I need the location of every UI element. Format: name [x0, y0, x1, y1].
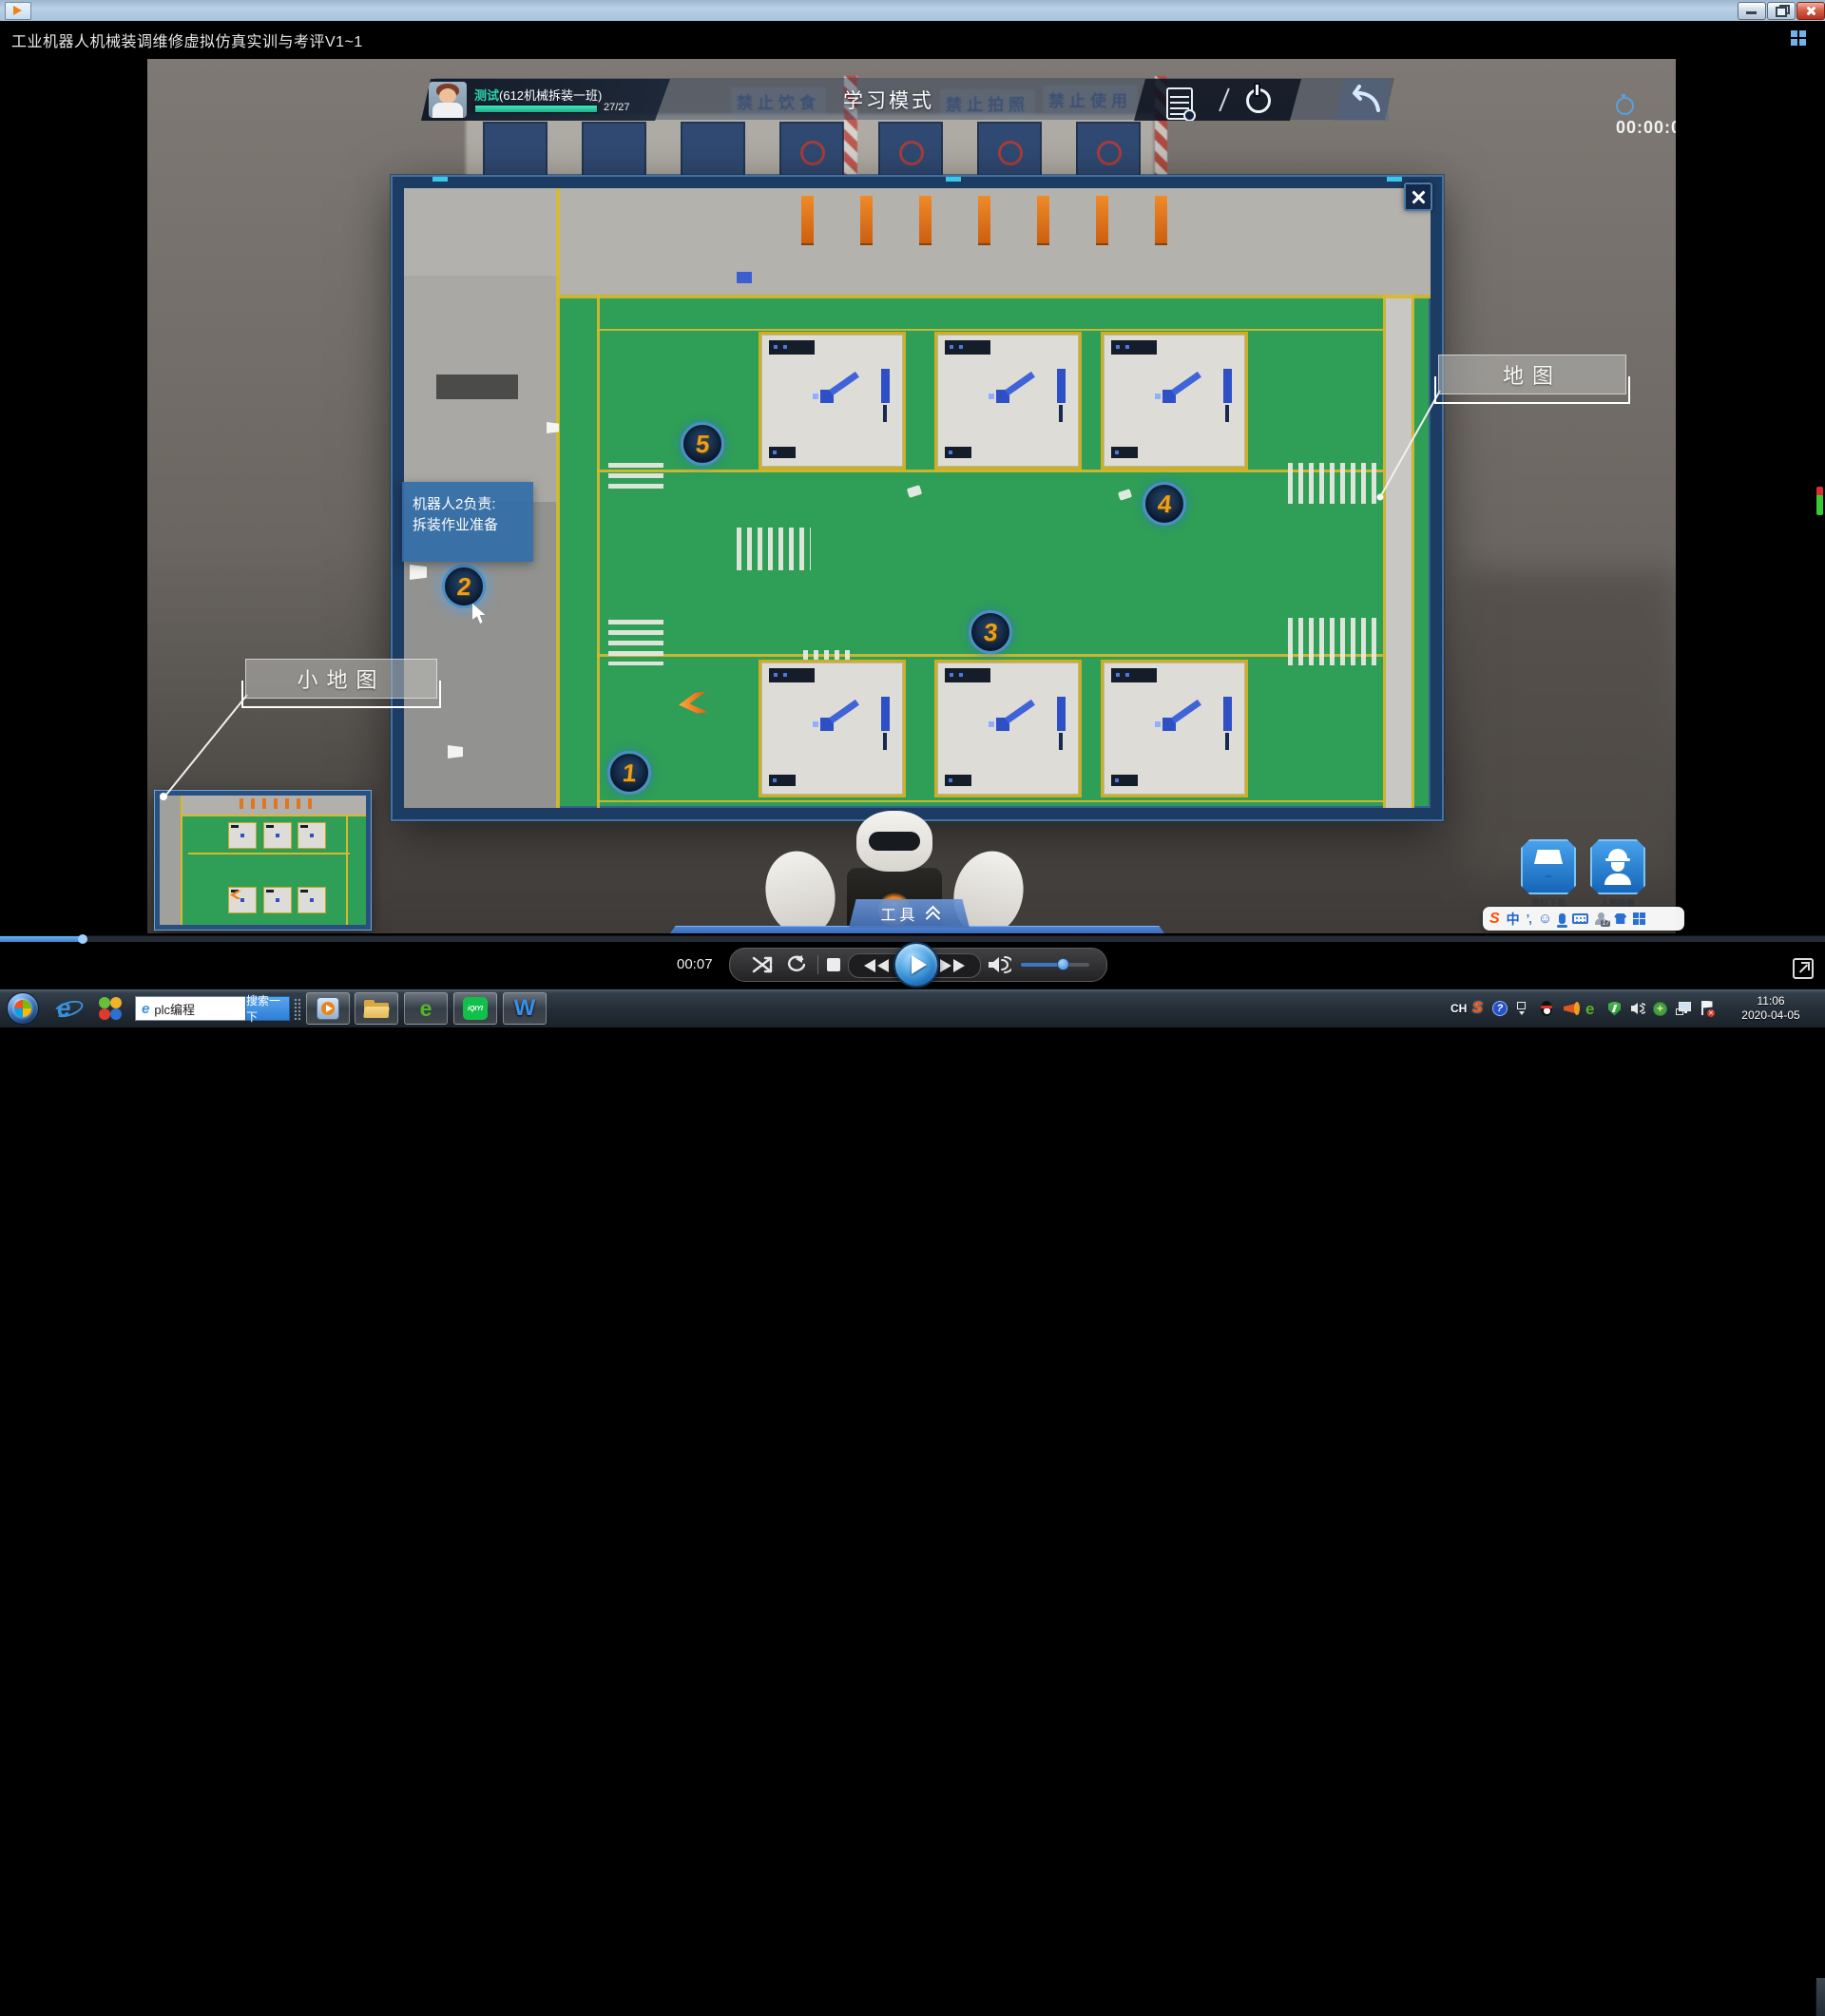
window-minimize-button[interactable] — [1738, 2, 1766, 20]
worker-helmet-icon — [1604, 849, 1631, 885]
map-marker-2[interactable]: 2 — [442, 565, 486, 608]
tray-security-shield-icon[interactable] — [1608, 989, 1621, 1027]
progress-bar — [474, 105, 598, 113]
workcell — [759, 332, 906, 470]
lane-line — [556, 188, 560, 808]
wps-icon: W — [514, 997, 536, 1020]
video-frame[interactable]: 禁止饮食 禁止拍照 禁止使用 测试(612机械拆装一班) 27/27 学习模式 … — [147, 59, 1676, 933]
door-icon — [448, 745, 463, 758]
green-e-icon: e — [420, 998, 432, 1020]
soft-keyboard-icon[interactable] — [1572, 913, 1588, 924]
ime-toolbar: S 中 ’, ☺ 17 — [1483, 907, 1684, 931]
taskbar-browser-button[interactable] — [99, 997, 122, 1020]
map-marker-5[interactable]: 5 — [681, 422, 724, 466]
chevron-up-icon — [927, 907, 938, 920]
fast-forward-icon[interactable] — [938, 958, 967, 973]
hud-user-plate: 测试(612机械拆装一班) 27/27 — [421, 79, 670, 121]
repeat-icon[interactable] — [785, 955, 808, 974]
map-panel: 5 2 4 3 1 — [393, 177, 1442, 819]
lane-line — [597, 800, 1383, 802]
workcell — [1101, 660, 1248, 797]
avatar[interactable] — [429, 82, 467, 118]
user-name: 测试(612机械拆装一班) — [474, 86, 602, 104]
crosswalk — [1288, 618, 1376, 665]
minimap-callout-label: 小地图 — [245, 659, 437, 699]
crosswalk — [608, 463, 663, 494]
lane-line — [597, 654, 1383, 657]
lane-line — [556, 295, 1431, 298]
play-button[interactable] — [893, 942, 939, 988]
scene-poster-frame — [1076, 122, 1141, 179]
tray-antivirus-icon[interactable]: + — [1653, 989, 1667, 1027]
map-callout-label: 地图 — [1438, 355, 1626, 394]
fullscreen-button[interactable] — [1793, 958, 1814, 979]
recorder-level-widget — [1816, 487, 1823, 515]
lane-line — [1412, 295, 1414, 808]
map-close-button[interactable] — [1404, 182, 1432, 211]
voice-input-icon[interactable] — [1559, 913, 1566, 924]
seek-knob[interactable] — [78, 934, 87, 944]
hud-icon-panel — [1134, 79, 1301, 121]
minimap[interactable] — [155, 791, 371, 930]
charging-bay — [860, 196, 873, 243]
drawer-icon — [1534, 850, 1563, 884]
search-go-button[interactable]: 搜索一下 — [245, 996, 290, 1021]
mode-label: 学习模式 — [843, 86, 934, 114]
robot-visor — [869, 832, 920, 851]
session-timer: 00:00:00 — [1616, 95, 1676, 138]
scene-poster-frame — [977, 122, 1042, 179]
crosswalk — [737, 528, 811, 570]
tools-tab[interactable]: 工具 — [849, 899, 970, 928]
iqiyi-icon: iQIYI — [463, 997, 488, 1020]
map-marker-4[interactable]: 4 — [1143, 482, 1186, 526]
app-icon — [5, 2, 31, 20]
window-close-button[interactable] — [1796, 2, 1825, 20]
ime-theme-icon[interactable] — [1614, 913, 1626, 924]
map-marker-3[interactable]: 3 — [969, 610, 1012, 654]
rewind-icon[interactable] — [862, 958, 891, 973]
player-stage: 工业机器人机械装调维修虚拟仿真实训与考评V1~1 禁止饮食 禁止拍照 禁止使用 … — [0, 21, 1825, 989]
play-glyph-icon — [13, 6, 22, 15]
tray-browser-icon[interactable]: e — [1585, 989, 1594, 1027]
scene-poster-frame — [582, 122, 646, 179]
tray-network-icon[interactable] — [1676, 989, 1691, 1027]
floor-mark — [907, 485, 922, 498]
taskbar-iqiyi-button[interactable]: iQIYI — [453, 992, 497, 1025]
map-top-strip — [558, 188, 1431, 295]
back-arrow-icon — [1345, 85, 1383, 115]
scene-shadow — [1464, 572, 1673, 876]
media-title: 工业机器人机械装调维修虚拟仿真实训与考评V1~1 — [11, 29, 363, 51]
tray-announcement-icon[interactable] — [1564, 989, 1580, 1027]
frame-tick — [432, 177, 448, 182]
workcell — [934, 660, 1082, 797]
stopwatch-icon — [1616, 97, 1634, 115]
door-icon — [410, 565, 427, 580]
door-icon — [547, 422, 559, 433]
crosswalk — [1288, 463, 1376, 504]
workcell — [759, 660, 906, 797]
tray-action-center-icon[interactable]: ✕ — [1700, 989, 1715, 1027]
power-icon[interactable] — [1246, 88, 1271, 113]
start-button[interactable] — [7, 992, 39, 1025]
seek-bar[interactable] — [0, 935, 1825, 942]
materials-button[interactable] — [1521, 839, 1576, 894]
search-query: plc编程 — [154, 1000, 195, 1018]
tray-clock[interactable]: 11:062020-04-05 — [1730, 989, 1812, 1027]
playlist-grid-icon[interactable] — [1791, 30, 1806, 46]
toolbar-drag-handle[interactable] — [293, 997, 300, 1020]
robot-tooltip: 机器人2负责:拆装作业准备 — [402, 482, 533, 562]
divider — [1219, 88, 1230, 112]
taskbar: e e plc编程 搜索一下 e iQIYI W CH S ? e + ✕ 11… — [0, 989, 1825, 1027]
playback-time: 00:07 — [677, 956, 713, 972]
player-controls — [729, 948, 1107, 982]
ime-punctuation-toggle[interactable]: ’, — [1527, 912, 1531, 926]
media-player-icon — [317, 997, 339, 1020]
player-position-arrow — [678, 691, 708, 715]
map-machine — [737, 272, 752, 283]
sogou-logo-icon[interactable]: S — [1489, 911, 1500, 928]
lane-line — [1383, 295, 1386, 808]
volume-icon[interactable] — [987, 955, 1011, 974]
folder-icon — [364, 1000, 389, 1018]
taskbar-explorer-button[interactable] — [355, 992, 398, 1025]
tray-sogou-icon[interactable]: S — [1472, 989, 1483, 1027]
charging-bay — [801, 196, 814, 243]
search-engine-icon: e — [142, 1001, 149, 1017]
tray-volume-icon[interactable] — [1630, 989, 1645, 1027]
scene-poster-frame — [483, 122, 547, 179]
show-desktop-button[interactable] — [1815, 1978, 1825, 2016]
tray-language-indicator[interactable]: CH — [1450, 989, 1467, 1027]
scene-poster-frame — [779, 122, 844, 179]
map-right-walkway — [1386, 295, 1412, 808]
stop-button[interactable] — [827, 958, 840, 971]
workcell — [934, 332, 1082, 470]
taskbar-browser2-button[interactable]: e — [404, 992, 448, 1025]
tray-hidden-icons-button[interactable] — [1517, 989, 1526, 1027]
window-titlebar — [0, 0, 1825, 22]
equipment-button[interactable] — [1590, 839, 1645, 894]
shuffle-icon[interactable] — [751, 955, 776, 974]
lane-line — [597, 295, 600, 808]
tray-help-icon[interactable]: ? — [1492, 989, 1508, 1027]
minimap-corridor — [160, 796, 181, 925]
charging-bay — [919, 196, 932, 243]
window-restore-button[interactable] — [1767, 2, 1796, 20]
scene-poster-frame — [878, 122, 943, 179]
scene-poster-frame — [681, 122, 745, 179]
frame-tick — [1387, 177, 1402, 182]
lane-line — [597, 470, 1383, 472]
ime-skin-icon[interactable]: 17 — [1595, 912, 1607, 925]
ime-toolbox-icon[interactable] — [1633, 912, 1645, 925]
lane-line — [597, 329, 1383, 331]
tray-qq-icon[interactable] — [1540, 989, 1553, 1027]
crosswalk — [608, 620, 663, 665]
charging-bay — [1096, 196, 1108, 243]
taskbar-player-button[interactable] — [306, 992, 350, 1025]
floor-mark — [1118, 489, 1132, 501]
progress-count: 27/27 — [604, 102, 630, 113]
taskbar-ie-button[interactable]: e — [57, 995, 70, 1021]
task-list-icon[interactable] — [1166, 87, 1193, 120]
volume-slider[interactable] — [1021, 963, 1089, 967]
charging-bay — [978, 196, 990, 243]
divider — [817, 955, 818, 974]
ime-language-toggle[interactable]: 中 — [1507, 910, 1520, 929]
frame-tick — [946, 177, 961, 182]
volume-knob[interactable] — [1057, 958, 1069, 970]
charging-bay — [1037, 196, 1049, 243]
workcell — [1101, 332, 1248, 470]
emoji-icon[interactable]: ☺ — [1538, 912, 1552, 926]
map-marker-1[interactable]: 1 — [607, 751, 651, 795]
charging-bay — [1155, 196, 1167, 243]
windows-flag-icon — [14, 1000, 31, 1017]
taskbar-wps-button[interactable]: W — [503, 992, 547, 1025]
